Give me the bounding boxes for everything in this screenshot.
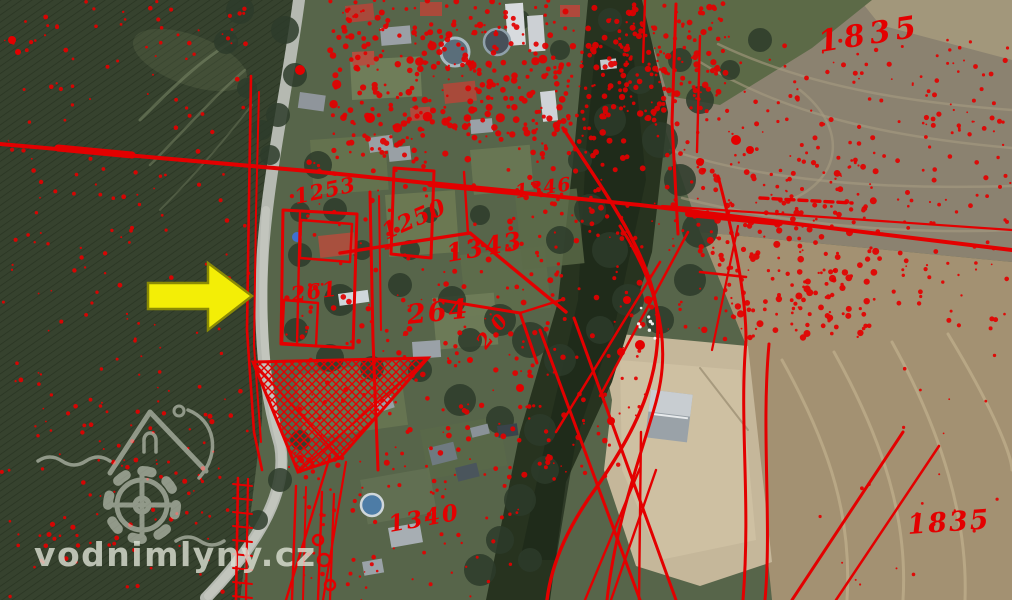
annotation-layer: vodnimlyny.cz: [0, 0, 1012, 600]
watermark: vodnimlyny.cz: [34, 406, 317, 574]
map-viewport[interactable]: 1835183512531250134313462642612.01340 vo…: [0, 0, 1012, 600]
highlight-arrow: [148, 263, 252, 330]
water-mill-logo-icon: [38, 406, 224, 545]
watermark-text: vodnimlyny.cz: [34, 535, 317, 574]
right-arrow-icon: [148, 263, 252, 330]
